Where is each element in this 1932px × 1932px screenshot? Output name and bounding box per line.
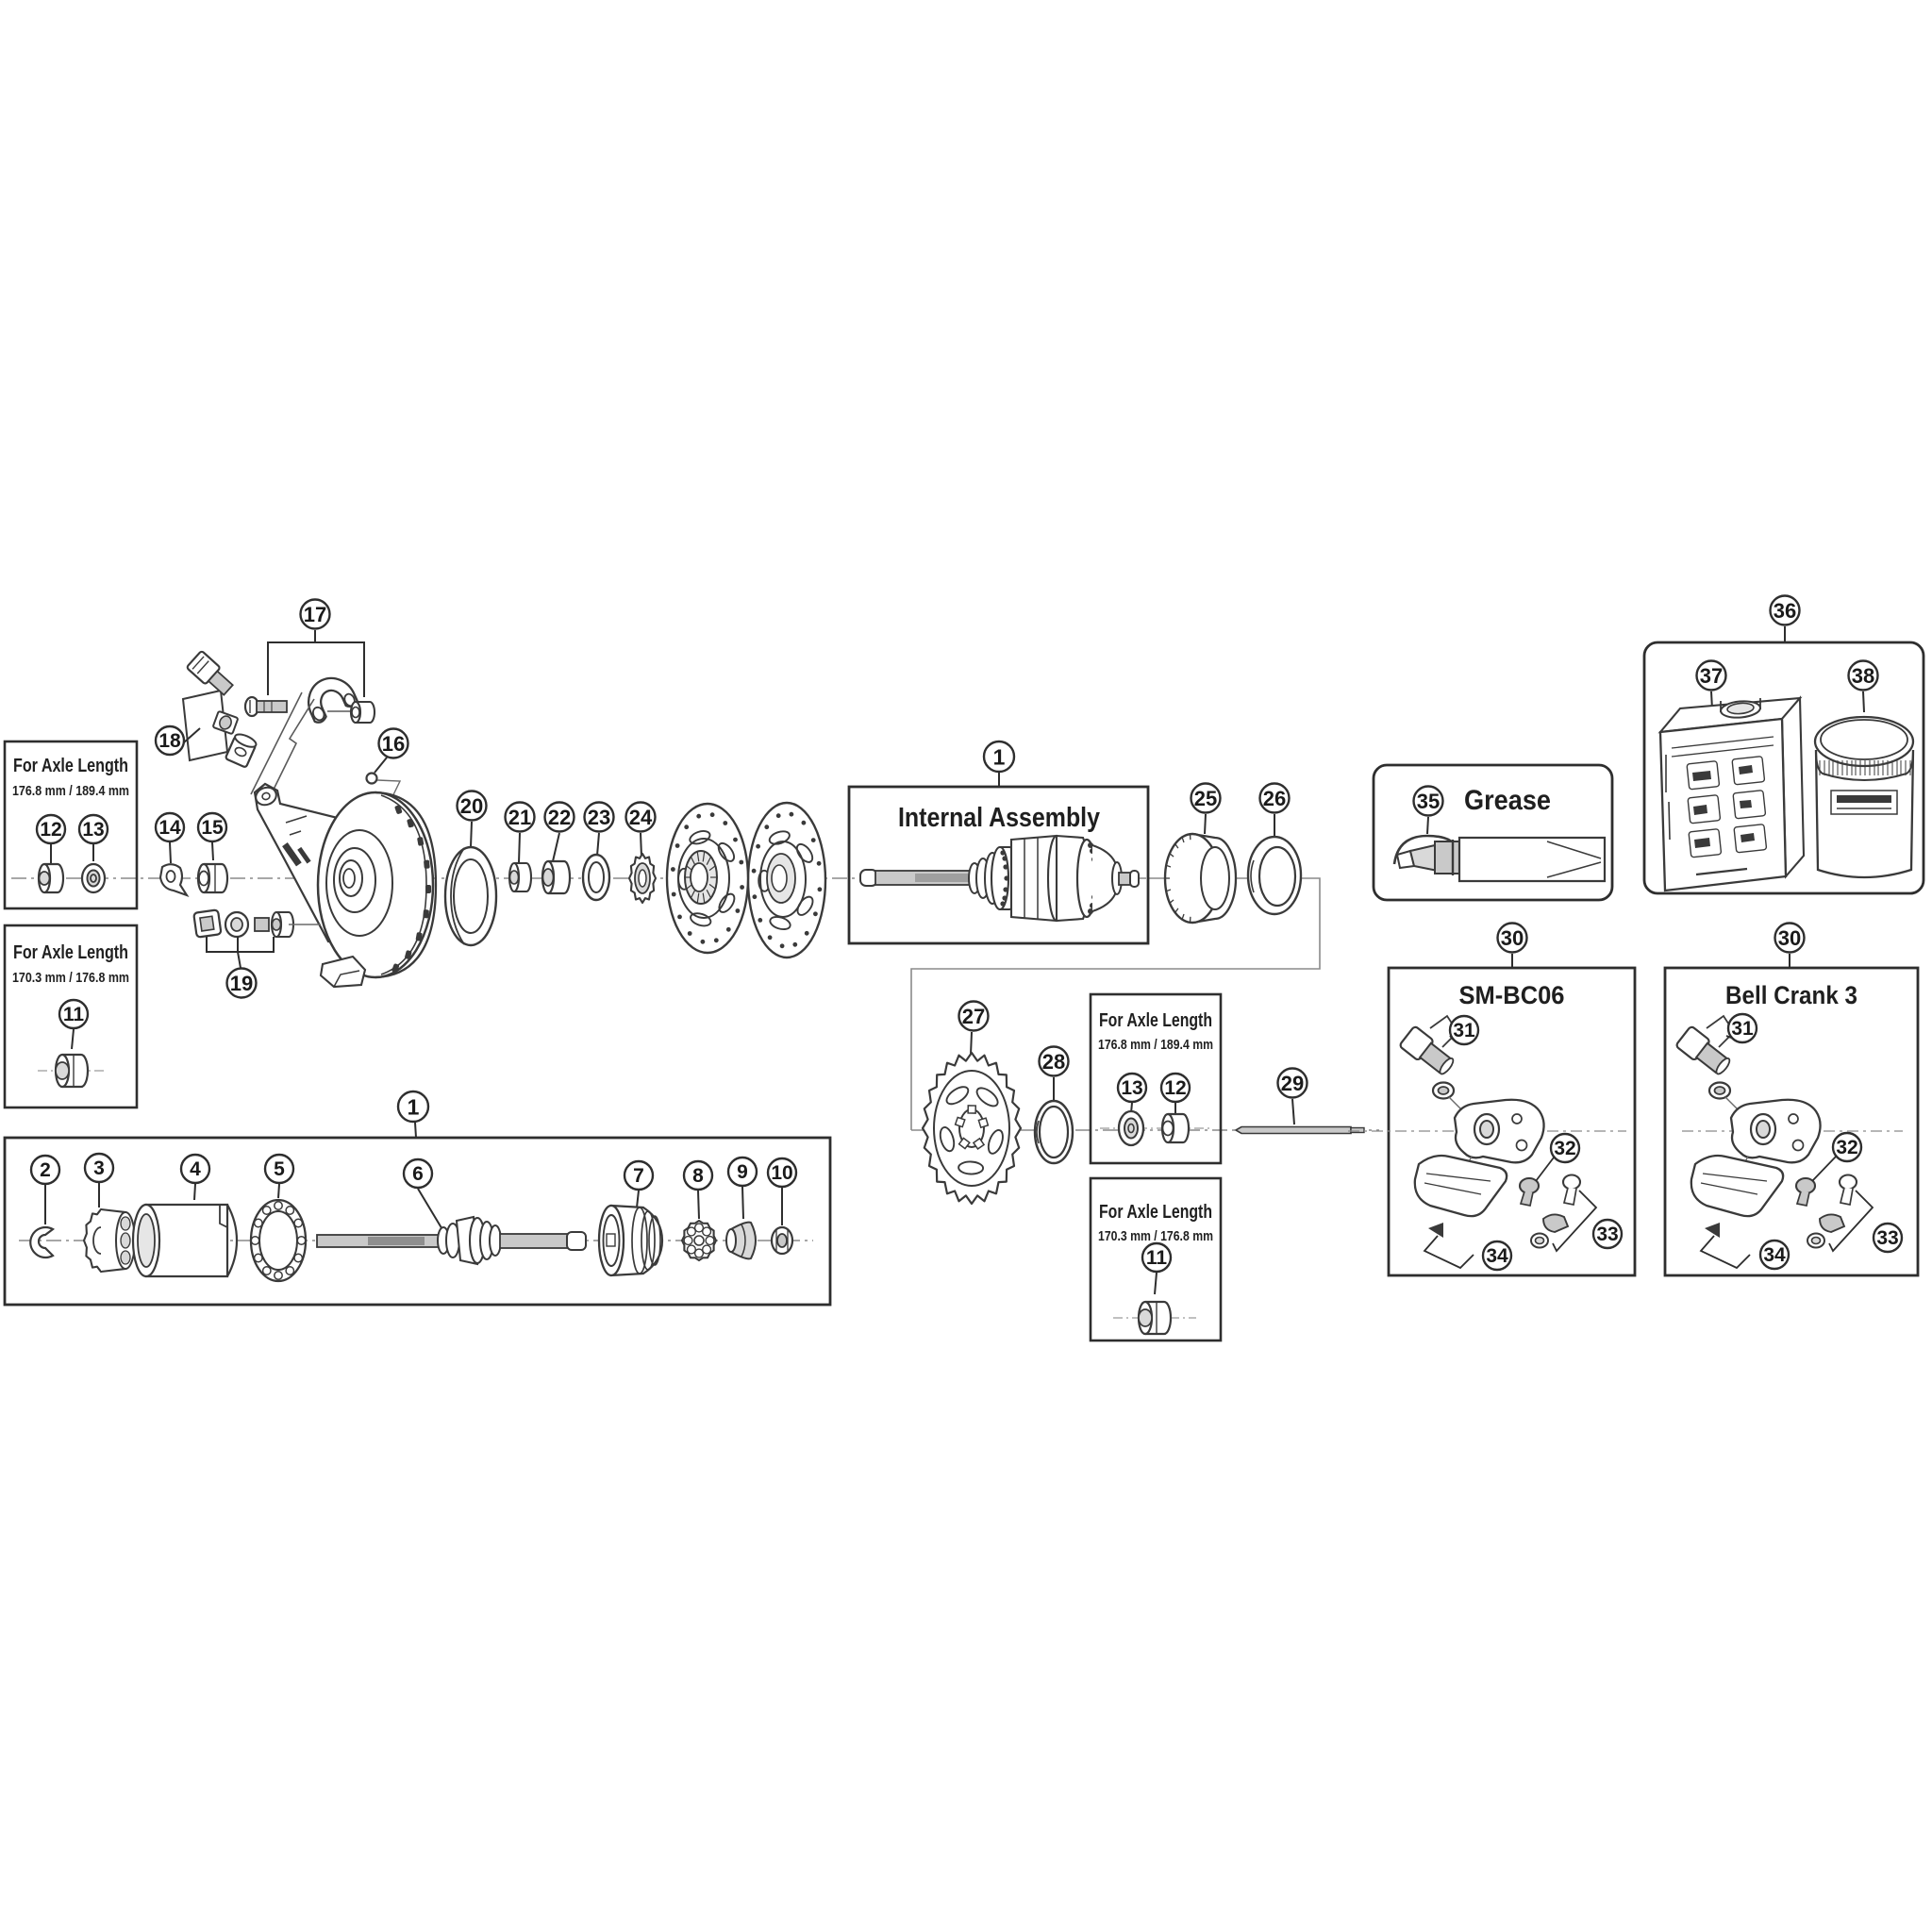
svg-text:12: 12	[40, 819, 61, 841]
svg-text:For Axle Length: For Axle Length	[13, 756, 128, 776]
svg-text:29: 29	[1281, 1072, 1304, 1095]
svg-text:26: 26	[1263, 787, 1286, 810]
svg-text:4: 4	[190, 1158, 201, 1180]
svg-text:1: 1	[408, 1095, 420, 1120]
svg-text:6: 6	[412, 1163, 424, 1185]
svg-text:18: 18	[158, 730, 181, 752]
svg-text:1: 1	[993, 745, 1006, 770]
svg-text:SM-BC06: SM-BC06	[1459, 981, 1565, 1009]
svg-text:34: 34	[1763, 1244, 1786, 1266]
svg-text:31: 31	[1731, 1018, 1754, 1040]
svg-text:3: 3	[93, 1158, 105, 1179]
svg-text:34: 34	[1486, 1245, 1508, 1267]
svg-text:36: 36	[1774, 599, 1796, 623]
svg-text:176.8 mm / 189.4 mm: 176.8 mm / 189.4 mm	[12, 784, 129, 799]
svg-text:28: 28	[1042, 1050, 1065, 1074]
svg-text:24: 24	[629, 806, 653, 829]
svg-text:21: 21	[508, 806, 531, 829]
svg-text:170.3 mm / 176.8 mm: 170.3 mm / 176.8 mm	[12, 971, 129, 986]
svg-text:12: 12	[1164, 1077, 1186, 1099]
svg-text:Bell Crank 3: Bell Crank 3	[1725, 981, 1857, 1009]
svg-text:31: 31	[1453, 1020, 1475, 1041]
svg-text:10: 10	[771, 1162, 792, 1184]
svg-text:For Axle Length: For Axle Length	[1099, 1202, 1212, 1223]
svg-text:35: 35	[1417, 790, 1440, 813]
svg-text:32: 32	[1836, 1137, 1857, 1158]
svg-text:11: 11	[63, 1004, 85, 1025]
svg-text:9: 9	[737, 1161, 748, 1183]
svg-text:170.3 mm / 176.8 mm: 170.3 mm / 176.8 mm	[1098, 1229, 1213, 1244]
svg-text:15: 15	[201, 817, 224, 839]
svg-text:22: 22	[548, 806, 571, 829]
svg-text:8: 8	[692, 1165, 704, 1187]
svg-text:176.8 mm / 189.4 mm: 176.8 mm / 189.4 mm	[1098, 1038, 1213, 1053]
svg-text:33: 33	[1596, 1224, 1618, 1245]
svg-text:13: 13	[82, 819, 104, 841]
svg-text:33: 33	[1876, 1227, 1898, 1249]
svg-text:25: 25	[1194, 787, 1217, 810]
svg-text:Internal Assembly: Internal Assembly	[898, 803, 1100, 833]
svg-text:For Axle Length: For Axle Length	[13, 942, 128, 963]
svg-text:Grease: Grease	[1464, 785, 1551, 816]
svg-text:37: 37	[1700, 664, 1723, 688]
svg-text:32: 32	[1554, 1138, 1575, 1159]
svg-text:11: 11	[1146, 1247, 1168, 1269]
svg-text:19: 19	[230, 972, 253, 995]
svg-text:38: 38	[1852, 664, 1874, 688]
svg-text:5: 5	[274, 1158, 285, 1180]
svg-text:30: 30	[1501, 926, 1524, 950]
svg-text:For Axle Length: For Axle Length	[1099, 1010, 1212, 1031]
svg-text:14: 14	[158, 817, 181, 839]
svg-text:30: 30	[1778, 926, 1801, 950]
svg-text:7: 7	[633, 1165, 644, 1187]
svg-text:16: 16	[382, 732, 405, 756]
svg-text:17: 17	[304, 603, 326, 626]
svg-text:23: 23	[588, 806, 610, 829]
svg-text:2: 2	[40, 1159, 51, 1181]
svg-text:13: 13	[1121, 1077, 1142, 1099]
svg-text:20: 20	[460, 794, 483, 818]
svg-text:27: 27	[962, 1005, 985, 1028]
